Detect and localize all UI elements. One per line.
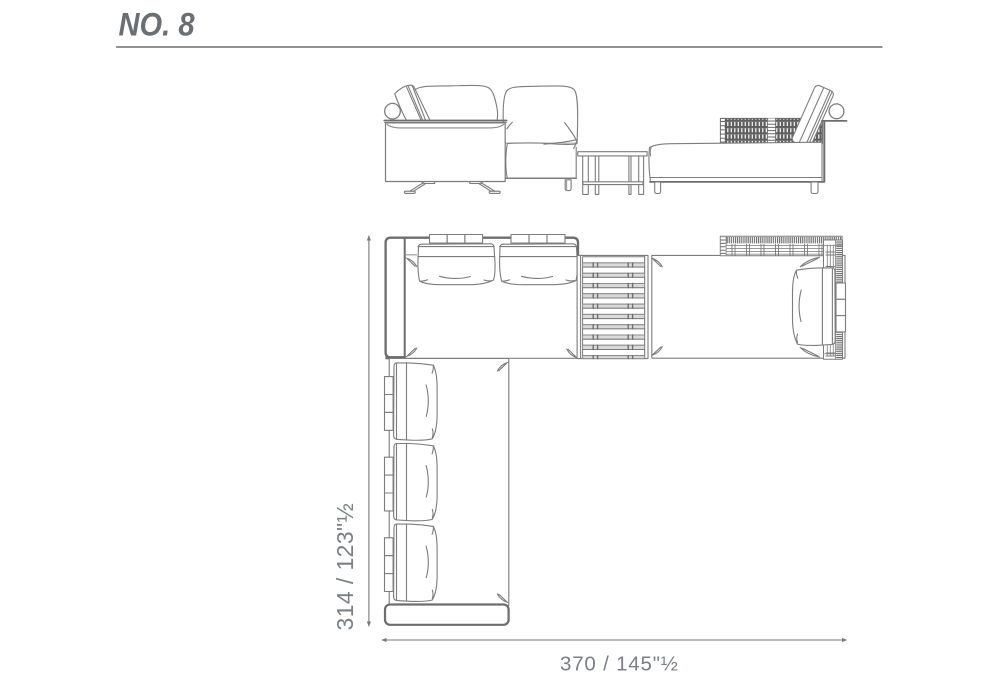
svg-text:NO. 8: NO. 8	[119, 7, 195, 43]
svg-text:314 / 123"½: 314 / 123"½	[332, 503, 358, 631]
svg-text:370 / 145"½: 370 / 145"½	[560, 653, 679, 676]
